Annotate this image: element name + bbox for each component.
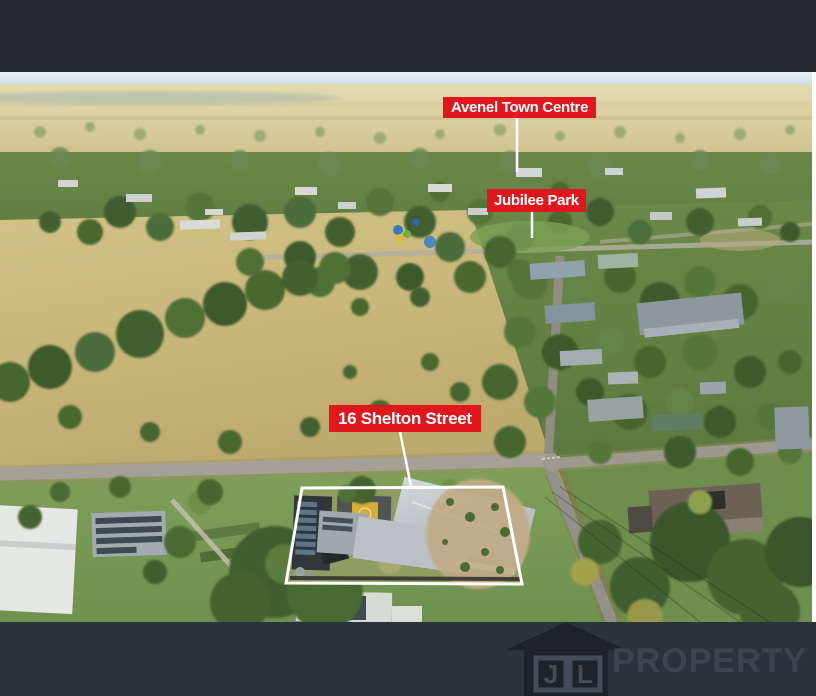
top-letterbox-bar xyxy=(0,0,816,72)
annotation-label-park: Jubilee Park xyxy=(487,189,586,212)
logo-initial-l: L xyxy=(577,659,593,689)
bottom-letterbox-bar: J L PROPERTY xyxy=(0,622,816,696)
annotation-label-town-centre: Avenel Town Centre xyxy=(443,97,596,118)
brand-name-text: PROPERTY xyxy=(612,644,807,678)
aerial-photo: Avenel Town Centre Jubilee Park 16 Shelt… xyxy=(0,72,812,622)
aerial-photo-art xyxy=(0,72,812,622)
logo-initial-j: J xyxy=(544,659,558,689)
annotation-label-property-address: 16 Shelton Street xyxy=(329,405,481,432)
page-root: Avenel Town Centre Jubilee Park 16 Shelt… xyxy=(0,0,816,696)
brand-watermark: J L PROPERTY xyxy=(506,622,812,696)
